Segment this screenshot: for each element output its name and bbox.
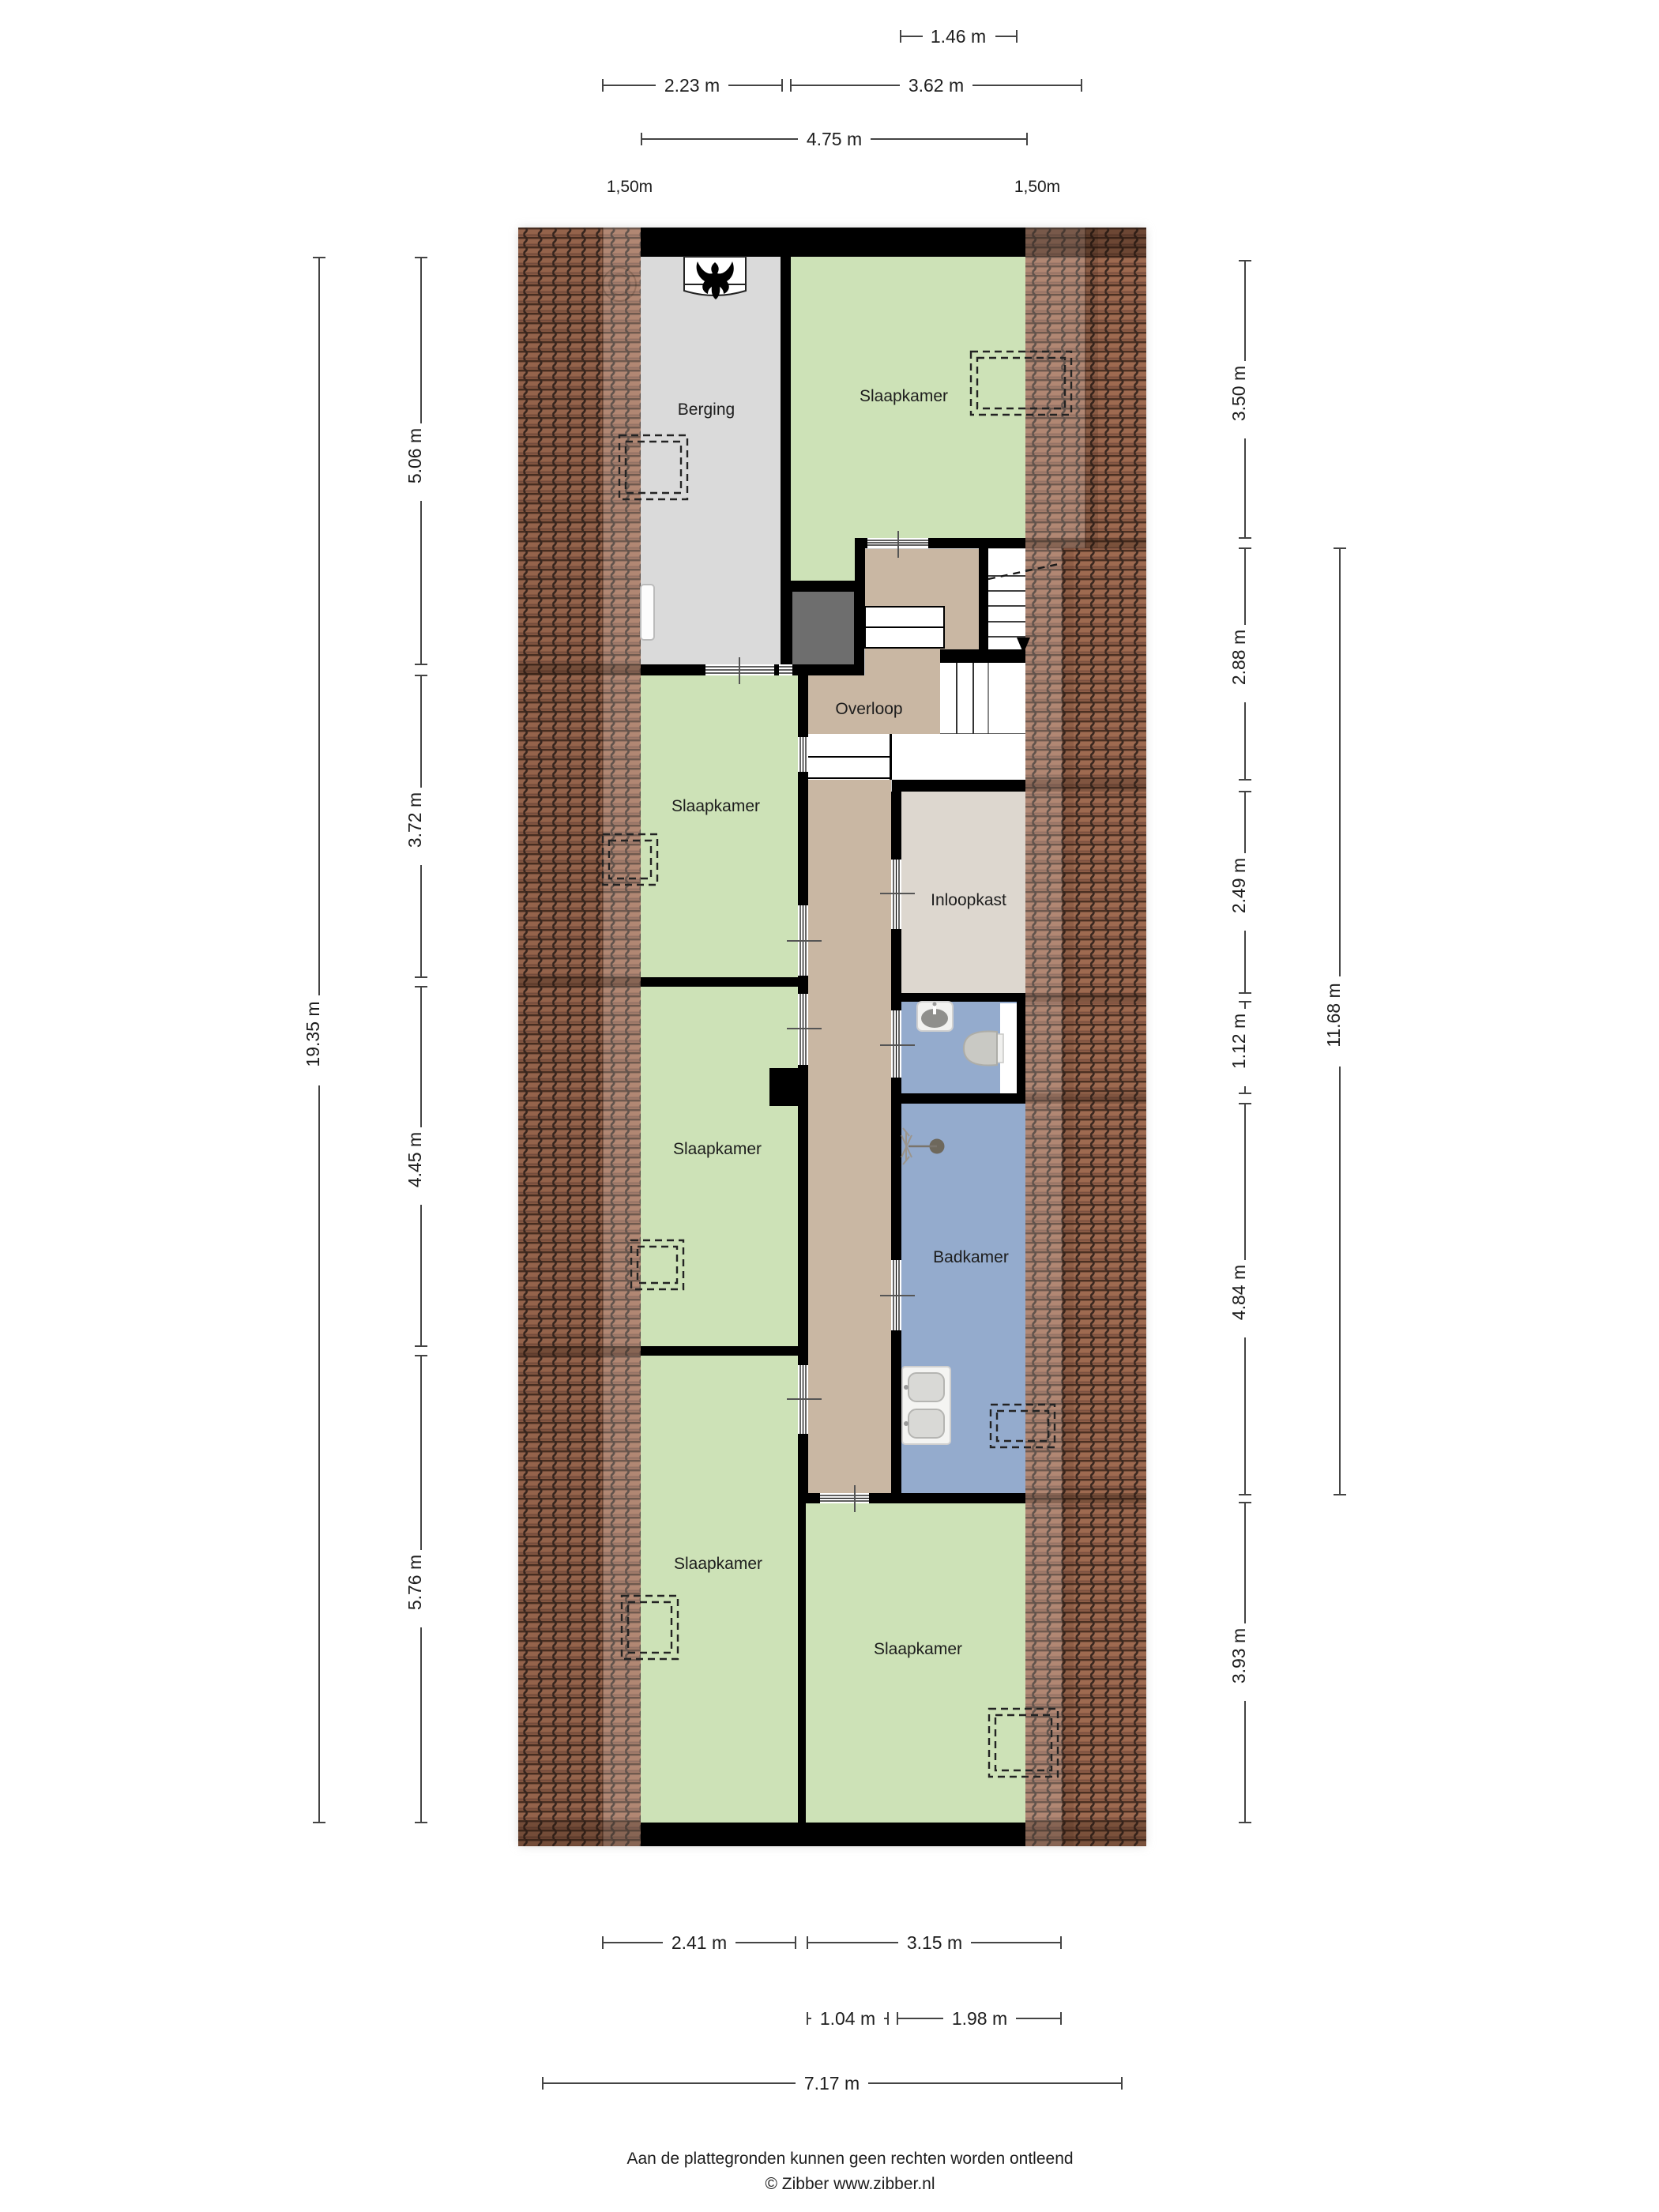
svg-text:2.23 m: 2.23 m <box>664 75 720 96</box>
svg-text:© Zibber www.zibber.nl: © Zibber www.zibber.nl <box>765 2175 935 2193</box>
svg-text:Slaapkamer: Slaapkamer <box>860 387 948 405</box>
svg-text:3.15 m: 3.15 m <box>907 1932 962 1953</box>
svg-text:4.75 m: 4.75 m <box>807 129 862 149</box>
svg-text:4.45 m: 4.45 m <box>404 1132 425 1187</box>
svg-text:Slaapkamer: Slaapkamer <box>874 1640 962 1658</box>
svg-text:Badkamer: Badkamer <box>933 1248 1009 1266</box>
svg-text:11.68 m: 11.68 m <box>1323 983 1344 1047</box>
svg-text:2.49 m: 2.49 m <box>1228 858 1249 913</box>
svg-text:1.04 m: 1.04 m <box>820 2008 875 2029</box>
svg-text:1,50m: 1,50m <box>607 178 653 196</box>
svg-text:Inloopkast: Inloopkast <box>931 891 1006 909</box>
svg-text:4.84 m: 4.84 m <box>1228 1265 1249 1320</box>
svg-text:3.93 m: 3.93 m <box>1228 1628 1249 1683</box>
svg-text:Slaapkamer: Slaapkamer <box>671 797 760 815</box>
svg-text:1,50m: 1,50m <box>1014 178 1060 196</box>
svg-text:3.62 m: 3.62 m <box>908 75 964 96</box>
svg-text:3.50 m: 3.50 m <box>1228 366 1249 421</box>
svg-text:Aan de plattegronden kunnen ge: Aan de plattegronden kunnen geen rechten… <box>626 2150 1073 2168</box>
svg-text:Overloop: Overloop <box>835 700 902 718</box>
svg-text:3.72 m: 3.72 m <box>404 792 425 848</box>
svg-text:5.76 m: 5.76 m <box>404 1555 425 1610</box>
svg-text:1.98 m: 1.98 m <box>952 2008 1007 2029</box>
svg-text:5.06 m: 5.06 m <box>404 428 425 483</box>
svg-text:7.17 m: 7.17 m <box>804 2073 860 2093</box>
svg-text:2.41 m: 2.41 m <box>671 1932 727 1953</box>
svg-text:2.88 m: 2.88 m <box>1228 630 1249 685</box>
svg-text:1.12 m: 1.12 m <box>1228 1014 1249 1069</box>
svg-text:Slaapkamer: Slaapkamer <box>673 1140 762 1158</box>
svg-text:Berging: Berging <box>678 401 735 419</box>
svg-text:Slaapkamer: Slaapkamer <box>674 1555 762 1573</box>
svg-text:1.46 m: 1.46 m <box>931 26 986 47</box>
svg-text:19.35 m: 19.35 m <box>303 1001 323 1066</box>
